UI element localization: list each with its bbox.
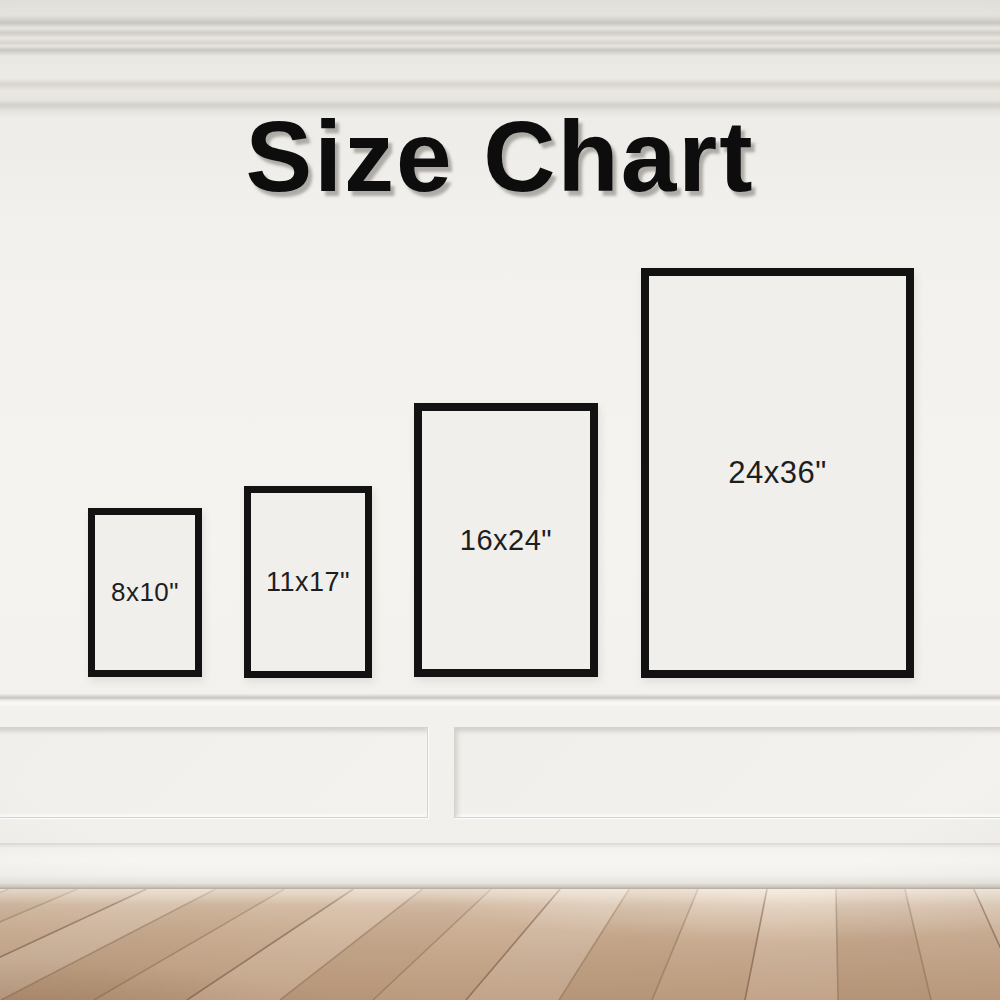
frame-24x36: 24x36" bbox=[641, 268, 914, 678]
floor-planks bbox=[0, 889, 1000, 1000]
size-label: 24x36" bbox=[728, 455, 826, 491]
size-label: 8x10" bbox=[111, 577, 179, 608]
page-title: Size Chart bbox=[0, 104, 1000, 209]
wainscot-panel-left bbox=[0, 727, 428, 818]
wood-floor bbox=[0, 889, 1000, 1000]
room-scene: Size Chart 8x10" 11x17" 16x24" 24x36" bbox=[0, 0, 1000, 1000]
baseboard bbox=[0, 843, 1000, 889]
frame-16x24: 16x24" bbox=[414, 403, 598, 677]
chair-rail-molding bbox=[0, 694, 1000, 708]
size-label: 16x24" bbox=[460, 524, 552, 557]
size-label: 11x17" bbox=[266, 567, 350, 598]
frame-8x10: 8x10" bbox=[88, 508, 202, 677]
frame-11x17: 11x17" bbox=[244, 486, 372, 678]
wainscot-panel-right bbox=[454, 727, 1000, 818]
